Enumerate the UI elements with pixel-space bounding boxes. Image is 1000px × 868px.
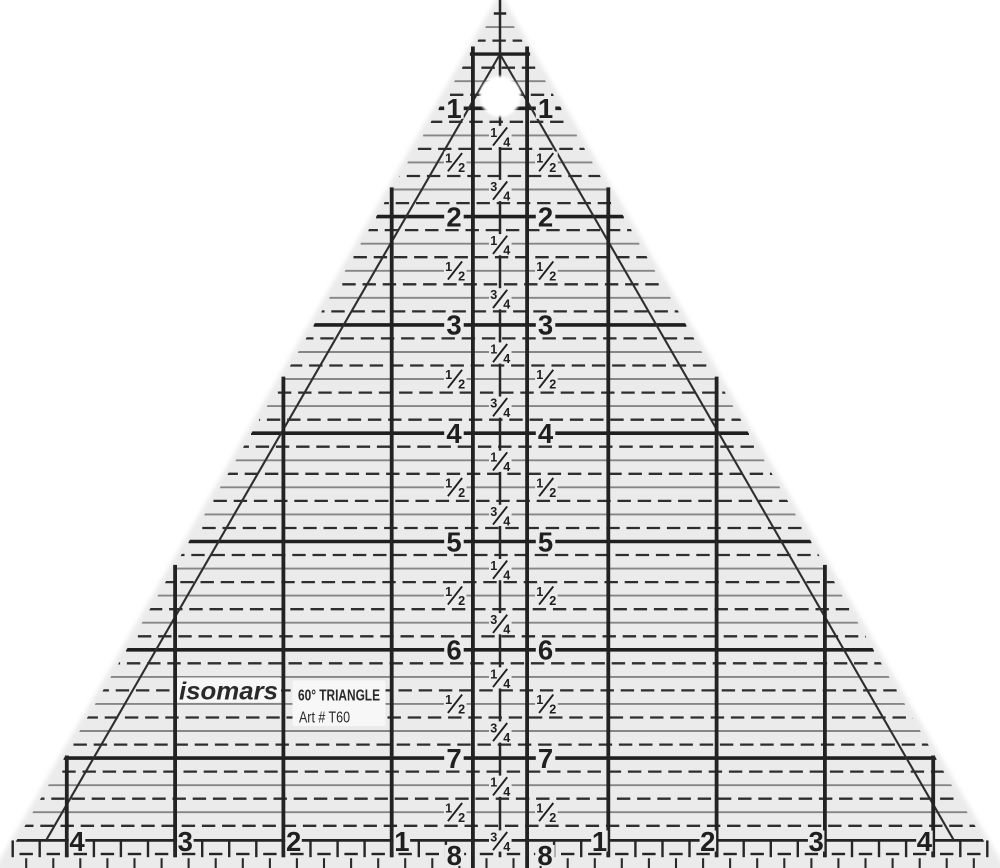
- svg-text:1: 1: [445, 152, 452, 166]
- svg-text:1: 1: [490, 234, 497, 248]
- svg-text:1: 1: [536, 801, 543, 815]
- svg-text:2: 2: [549, 378, 556, 392]
- svg-text:8: 8: [537, 840, 552, 868]
- svg-text:1: 1: [446, 93, 461, 124]
- svg-text:2: 2: [458, 378, 465, 392]
- svg-text:4: 4: [503, 244, 510, 258]
- svg-text:2: 2: [286, 826, 301, 857]
- svg-text:1: 1: [394, 826, 409, 857]
- svg-text:1: 1: [490, 451, 497, 465]
- svg-text:4: 4: [446, 418, 462, 449]
- svg-text:1: 1: [490, 126, 497, 140]
- svg-text:2: 2: [549, 703, 556, 717]
- svg-text:4: 4: [503, 623, 510, 637]
- svg-text:4: 4: [503, 677, 510, 691]
- svg-text:Art # T60: Art # T60: [299, 709, 350, 726]
- svg-text:3: 3: [490, 180, 497, 194]
- svg-text:1: 1: [536, 368, 543, 382]
- svg-text:2: 2: [549, 486, 556, 500]
- svg-text:3: 3: [490, 721, 497, 735]
- svg-text:1: 1: [536, 476, 543, 490]
- svg-text:1: 1: [490, 342, 497, 356]
- svg-text:4: 4: [503, 569, 510, 583]
- svg-text:3: 3: [490, 288, 497, 302]
- svg-text:1: 1: [445, 693, 452, 707]
- svg-text:1: 1: [445, 476, 452, 490]
- svg-text:4: 4: [503, 298, 510, 312]
- svg-text:4: 4: [503, 460, 510, 474]
- svg-text:3: 3: [178, 826, 193, 857]
- svg-text:2: 2: [458, 594, 465, 608]
- svg-text:2: 2: [549, 269, 556, 283]
- svg-text:1: 1: [490, 667, 497, 681]
- svg-text:2: 2: [458, 703, 465, 717]
- svg-text:4: 4: [503, 135, 510, 149]
- svg-text:1: 1: [536, 585, 543, 599]
- svg-text:1: 1: [536, 152, 543, 166]
- svg-text:7: 7: [538, 743, 553, 774]
- svg-text:3: 3: [808, 826, 823, 857]
- svg-text:7: 7: [446, 743, 461, 774]
- svg-text:2: 2: [549, 594, 556, 608]
- svg-text:1: 1: [445, 585, 452, 599]
- svg-text:5: 5: [538, 526, 553, 557]
- svg-text:2: 2: [446, 201, 461, 232]
- svg-text:4: 4: [69, 826, 85, 857]
- svg-text:2: 2: [538, 201, 553, 232]
- svg-text:60° TRIANGLE: 60° TRIANGLE: [298, 687, 380, 704]
- svg-text:4: 4: [503, 352, 510, 366]
- svg-text:3: 3: [490, 505, 497, 519]
- svg-text:4: 4: [503, 406, 510, 420]
- svg-text:4: 4: [503, 840, 510, 854]
- svg-text:6: 6: [538, 635, 553, 666]
- svg-text:6: 6: [446, 635, 461, 666]
- svg-text:isomars: isomars: [179, 678, 278, 706]
- svg-text:2: 2: [549, 161, 556, 175]
- svg-text:1: 1: [538, 93, 553, 124]
- svg-text:2: 2: [458, 269, 465, 283]
- svg-text:4: 4: [917, 826, 933, 857]
- svg-text:3: 3: [490, 397, 497, 411]
- svg-text:1: 1: [536, 693, 543, 707]
- svg-text:3: 3: [446, 310, 461, 341]
- svg-text:2: 2: [700, 826, 715, 857]
- svg-text:1: 1: [445, 801, 452, 815]
- svg-text:4: 4: [503, 189, 510, 203]
- svg-text:4: 4: [503, 731, 510, 745]
- svg-text:3: 3: [490, 613, 497, 627]
- svg-text:4: 4: [503, 785, 510, 799]
- svg-text:1: 1: [536, 260, 543, 274]
- svg-text:1: 1: [490, 559, 497, 573]
- svg-text:3: 3: [490, 830, 497, 844]
- svg-text:2: 2: [458, 161, 465, 175]
- svg-text:1: 1: [445, 368, 452, 382]
- svg-text:1: 1: [490, 776, 497, 790]
- svg-text:1: 1: [592, 826, 607, 857]
- svg-text:2: 2: [458, 811, 465, 825]
- svg-text:4: 4: [538, 418, 554, 449]
- svg-text:2: 2: [458, 486, 465, 500]
- svg-text:3: 3: [538, 310, 553, 341]
- svg-text:8: 8: [447, 840, 462, 868]
- svg-text:2: 2: [549, 811, 556, 825]
- svg-text:1: 1: [445, 260, 452, 274]
- svg-text:5: 5: [446, 526, 461, 557]
- svg-text:4: 4: [503, 514, 510, 528]
